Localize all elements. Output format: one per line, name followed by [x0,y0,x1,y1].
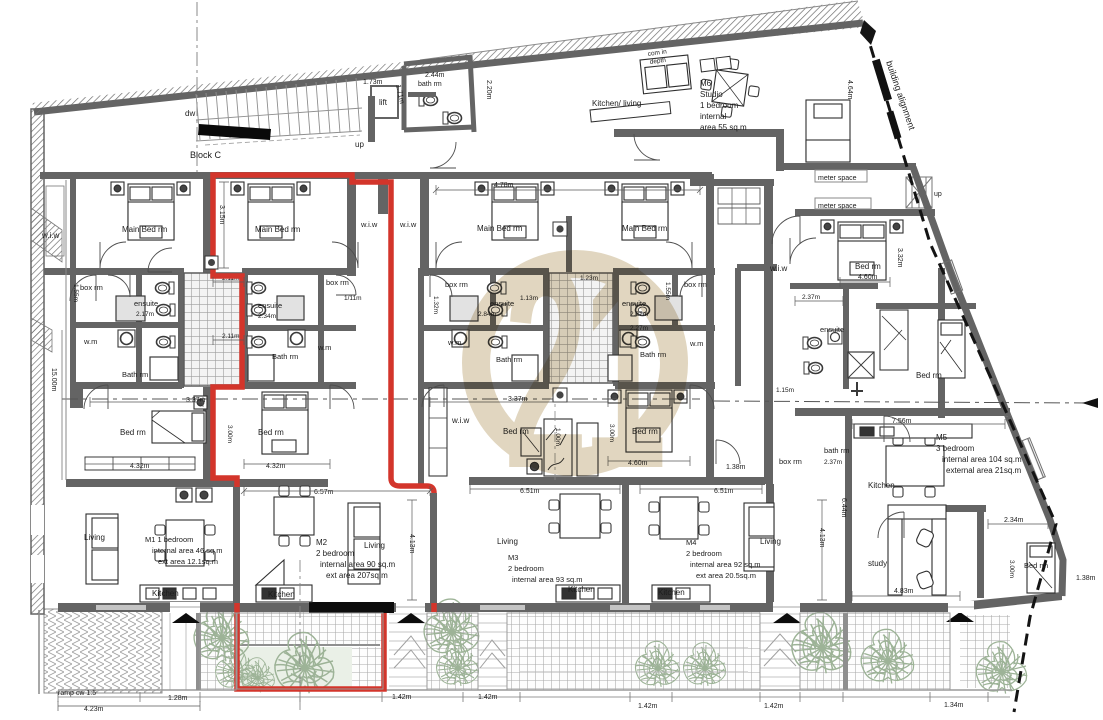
svg-text:1.55m: 1.55m [72,284,79,302]
svg-text:w.m: w.m [447,338,461,347]
svg-text:w.i.w: w.i.w [360,220,378,229]
svg-text:box rm: box rm [779,457,802,466]
svg-text:2.11m: 2.11m [222,333,240,340]
svg-text:1.42m: 1.42m [764,703,784,710]
svg-text:2.20m: 2.20m [485,80,492,100]
svg-text:w.i.w: w.i.w [41,231,60,240]
svg-text:1.32m: 1.32m [432,296,439,314]
svg-text:Bed rm: Bed rm [120,428,146,437]
svg-text:Studio: Studio [700,90,723,99]
svg-text:3.32m: 3.32m [896,248,903,268]
svg-text:w.i.w: w.i.w [769,264,788,273]
svg-text:2.34m: 2.34m [258,313,276,320]
svg-text:M5: M5 [936,433,948,442]
svg-text:internal area 92 sq.m: internal area 92 sq.m [690,560,760,569]
svg-text:1 bedroom: 1 bedroom [700,101,739,110]
svg-text:6.44m: 6.44m [840,498,847,518]
svg-text:ensuite: ensuite [134,299,158,308]
svg-text:Living: Living [84,533,105,542]
svg-text:bath rm: bath rm [824,446,849,455]
svg-text:Main Bed rm: Main Bed rm [255,225,301,234]
svg-text:box rm: box rm [445,280,468,289]
svg-text:15.00m: 15.00m [50,368,57,392]
svg-text:box rm: box rm [326,278,349,287]
svg-text:external area 21sq.m: external area 21sq.m [946,466,1021,475]
svg-text:lift: lift [379,98,388,107]
svg-text:Bath rm: Bath rm [272,352,298,361]
svg-text:1.42m: 1.42m [478,694,498,701]
svg-text:Living: Living [497,537,518,546]
svg-text:4.83m: 4.83m [894,588,914,595]
svg-text:ensuite: ensuite [258,301,282,310]
svg-text:Bed rm: Bed rm [855,262,881,271]
svg-text:Living: Living [364,541,385,550]
svg-text:1.34m: 1.34m [944,702,964,709]
svg-text:w.m: w.m [689,339,703,348]
svg-text:Bed rm: Bed rm [1024,561,1048,570]
svg-text:internal area 46 sq.m: internal area 46 sq.m [152,546,222,555]
svg-text:4.13m: 4.13m [818,528,825,548]
svg-text:w.m: w.m [317,343,331,352]
svg-text:1.73m: 1.73m [363,79,383,86]
svg-text:ramp cw 1:5: ramp cw 1:5 [58,690,96,697]
svg-text:4.23m: 4.23m [84,706,104,713]
svg-text:Block C: Block C [190,150,222,160]
svg-text:6.57m: 6.57m [314,489,334,496]
svg-text:2.37m: 2.37m [824,459,842,466]
svg-text:2.17m: 2.17m [136,311,154,318]
svg-text:Main Bed rm: Main Bed rm [122,225,168,234]
svg-text:up: up [934,191,942,198]
svg-text:2.37m: 2.37m [802,294,820,301]
svg-text:1.28m: 1.28m [168,695,188,702]
svg-text:2.34m: 2.34m [1004,517,1024,524]
svg-text:area 55 sq.m: area 55 sq.m [700,123,747,132]
svg-text:box rm: box rm [80,283,103,292]
svg-text:21: 21 [504,205,663,529]
svg-text:2 bedroom: 2 bedroom [316,549,355,558]
svg-text:w.m: w.m [83,337,97,346]
svg-text:internal area 90 sq.m: internal area 90 sq.m [320,560,395,569]
svg-text:meter space: meter space [818,203,857,210]
svg-text:ext area 207sq.m: ext area 207sq.m [326,571,388,580]
svg-text:internal area 104 sq.m: internal area 104 sq.m [942,455,1022,464]
svg-text:w.i.w: w.i.w [451,416,470,425]
svg-text:1.42m: 1.42m [638,703,658,710]
svg-text:4.60m: 4.60m [858,274,878,281]
svg-text:3.00m: 3.00m [226,425,233,443]
svg-text:Kitchen: Kitchen [658,588,685,597]
svg-text:4.78m: 4.78m [494,182,514,189]
svg-text:Kitchen: Kitchen [268,590,295,599]
svg-text:M6: M6 [700,79,712,88]
svg-text:Kitchen/ living: Kitchen/ living [592,99,641,108]
svg-text:Living: Living [760,537,781,546]
svg-text:M4: M4 [686,538,696,547]
svg-text:1.42m: 1.42m [392,694,412,701]
svg-text:1.38m: 1.38m [726,464,746,471]
svg-text:4.13m: 4.13m [408,534,415,554]
svg-text:M3: M3 [508,553,518,562]
svg-text:Kitchen: Kitchen [568,585,595,594]
svg-text:ext area 20.5sq.m: ext area 20.5sq.m [696,571,756,580]
svg-text:1.15m: 1.15m [776,387,794,394]
svg-text:bath rm: bath rm [418,81,442,88]
svg-text:M1 1 bedroom: M1 1 bedroom [145,535,193,544]
svg-text:ext area 12.1sq.m: ext area 12.1sq.m [158,557,218,566]
svg-text:1/11m: 1/11m [344,295,362,302]
svg-text:study: study [868,559,887,568]
svg-text:internal: internal [700,112,726,121]
svg-text:2 bedroom: 2 bedroom [686,549,722,558]
svg-text:2.44m: 2.44m [425,72,445,79]
svg-text:4.64m: 4.64m [846,80,853,100]
svg-text:3.00m: 3.00m [1008,560,1015,578]
svg-text:meter space: meter space [818,175,857,182]
svg-text:1.38m: 1.38m [1076,575,1096,582]
svg-text:box rm: box rm [684,280,707,289]
svg-text:Bed rm: Bed rm [258,428,284,437]
svg-text:3 bedroom: 3 bedroom [936,444,975,453]
svg-text:Kitchen: Kitchen [868,481,895,490]
svg-text:ensuite: ensuite [820,325,844,334]
svg-text:M2: M2 [316,538,328,547]
svg-text:Bed rm: Bed rm [916,371,942,380]
svg-text:dw: dw [185,109,195,118]
svg-text:internal area 93 sq.m: internal area 93 sq.m [512,575,582,584]
svg-text:up: up [355,140,364,149]
svg-text:Bath rm: Bath rm [122,370,148,379]
svg-text:2 bedroom: 2 bedroom [508,564,544,573]
svg-text:w.i.w: w.i.w [399,220,417,229]
svg-text:Kitchen: Kitchen [152,589,179,598]
